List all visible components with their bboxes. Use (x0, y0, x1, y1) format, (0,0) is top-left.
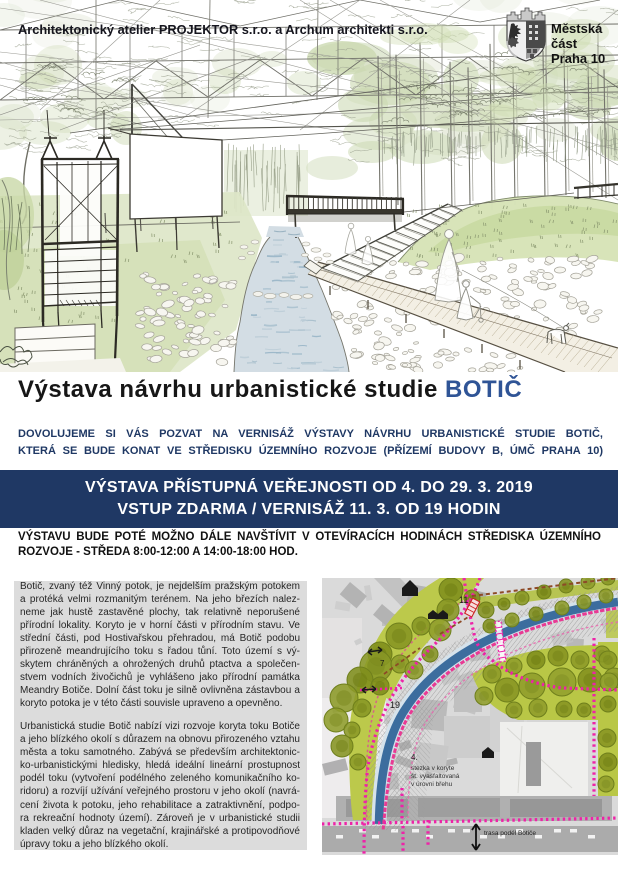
svg-text:19: 19 (390, 700, 400, 710)
svg-text:št. vyasfaltovaná: št. vyasfaltovaná (411, 773, 460, 780)
svg-text:v úrovni břehu: v úrovni břehu (411, 781, 453, 788)
svg-text:4.: 4. (411, 753, 418, 762)
svg-text:11: 11 (459, 595, 468, 605)
svg-text:trasa podél Botiče: trasa podél Botiče (484, 830, 536, 837)
svg-text:7: 7 (380, 659, 385, 668)
svg-text:stezka v koryte: stezka v koryte (411, 765, 455, 772)
